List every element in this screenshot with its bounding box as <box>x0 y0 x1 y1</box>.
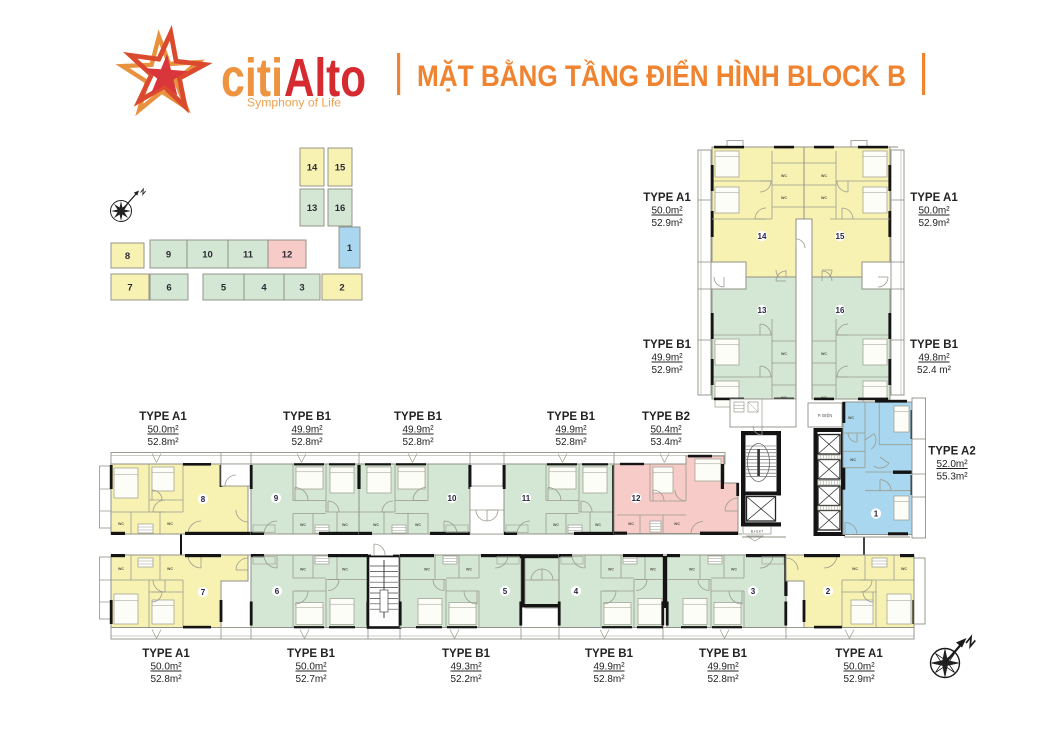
svg-text:WC: WC <box>342 568 348 572</box>
svg-text:53.4m²: 53.4m² <box>650 437 682 448</box>
svg-text:15: 15 <box>335 162 346 173</box>
svg-text:52.2m²: 52.2m² <box>450 674 482 685</box>
svg-text:WC: WC <box>901 567 907 571</box>
svg-text:TYPE B1: TYPE B1 <box>585 648 634 660</box>
svg-text:10: 10 <box>202 249 213 260</box>
svg-text:52.9m²: 52.9m² <box>651 218 683 229</box>
svg-text:9: 9 <box>274 494 279 503</box>
svg-text:16: 16 <box>335 203 346 214</box>
svg-text:12: 12 <box>632 494 641 503</box>
svg-text:TYPE A2: TYPE A2 <box>928 446 976 458</box>
svg-text:12: 12 <box>282 249 293 260</box>
svg-text:6: 6 <box>275 587 280 596</box>
svg-text:3: 3 <box>751 587 756 596</box>
svg-text:5: 5 <box>221 282 227 293</box>
svg-text:TYPE B1: TYPE B1 <box>283 411 332 423</box>
svg-text:P. ĐIỆN: P. ĐIỆN <box>818 413 833 418</box>
svg-text:TYPE B1: TYPE B1 <box>394 411 443 423</box>
svg-text:WC: WC <box>850 458 856 462</box>
svg-text:TYPE B1: TYPE B1 <box>910 339 959 351</box>
svg-text:11: 11 <box>522 494 531 503</box>
svg-text:WC: WC <box>848 416 854 420</box>
svg-text:TYPE A1: TYPE A1 <box>643 192 691 204</box>
svg-text:TYPE B1: TYPE B1 <box>699 648 748 660</box>
svg-text:50.0m²: 50.0m² <box>918 206 950 217</box>
svg-text:WC: WC <box>821 174 827 178</box>
svg-text:TYPE A1: TYPE A1 <box>142 648 190 660</box>
svg-text:52.8m²: 52.8m² <box>150 674 182 685</box>
svg-text:52.8m²: 52.8m² <box>147 437 179 448</box>
svg-text:WC: WC <box>628 522 634 526</box>
svg-text:WC: WC <box>553 523 559 527</box>
svg-text:WC: WC <box>595 523 601 527</box>
svg-text:49.9m²: 49.9m² <box>291 425 323 436</box>
svg-text:8: 8 <box>201 495 206 504</box>
svg-text:TYPE B1: TYPE B1 <box>287 648 336 660</box>
svg-text:50.0m²: 50.0m² <box>843 662 875 673</box>
svg-text:49.9m²: 49.9m² <box>593 662 625 673</box>
svg-text:2: 2 <box>826 587 831 596</box>
svg-text:16: 16 <box>836 306 845 315</box>
svg-text:WC: WC <box>415 523 421 527</box>
svg-text:WC: WC <box>781 196 787 200</box>
svg-text:13: 13 <box>307 203 318 214</box>
svg-text:TYPE B1: TYPE B1 <box>442 648 491 660</box>
svg-text:50.0m²: 50.0m² <box>147 425 179 436</box>
svg-text:TYPE A1: TYPE A1 <box>139 411 187 423</box>
svg-text:49.3m²: 49.3m² <box>450 662 482 673</box>
svg-text:49.9m²: 49.9m² <box>402 425 434 436</box>
svg-text:WC: WC <box>118 567 124 571</box>
svg-text:52.8m²: 52.8m² <box>555 437 587 448</box>
svg-text:TYPE A1: TYPE A1 <box>835 648 883 660</box>
svg-text:WC: WC <box>781 352 787 356</box>
svg-text:7: 7 <box>201 588 206 597</box>
svg-text:Symphony of Life: Symphony of Life <box>247 96 341 110</box>
svg-text:WC: WC <box>731 568 737 572</box>
svg-text:TYPE B2: TYPE B2 <box>642 411 690 423</box>
svg-text:52.4 m²: 52.4 m² <box>917 365 952 376</box>
svg-text:WC: WC <box>373 523 379 527</box>
svg-text:49.9m²: 49.9m² <box>651 353 683 364</box>
svg-text:3: 3 <box>299 282 304 293</box>
svg-text:WC: WC <box>821 196 827 200</box>
svg-text:11: 11 <box>243 249 254 260</box>
svg-text:WC: WC <box>674 522 680 526</box>
svg-text:55.3m²: 55.3m² <box>936 472 968 483</box>
svg-text:52.8m²: 52.8m² <box>291 437 323 448</box>
svg-text:WC: WC <box>118 522 124 526</box>
svg-text:B.HLKT: B.HLKT <box>751 529 764 533</box>
svg-text:52.8m²: 52.8m² <box>402 437 434 448</box>
svg-text:10: 10 <box>448 494 457 503</box>
svg-text:52.7m²: 52.7m² <box>295 674 327 685</box>
svg-text:52.9m²: 52.9m² <box>651 365 683 376</box>
svg-text:1: 1 <box>347 243 353 254</box>
svg-text:WC: WC <box>852 567 858 571</box>
svg-text:WC: WC <box>466 568 472 572</box>
svg-text:14: 14 <box>758 232 767 241</box>
svg-text:WC: WC <box>300 568 306 572</box>
svg-text:50.0m²: 50.0m² <box>150 662 182 673</box>
svg-text:13: 13 <box>758 306 767 315</box>
svg-text:49.8m²: 49.8m² <box>918 353 950 364</box>
svg-text:4: 4 <box>261 282 267 293</box>
svg-text:2: 2 <box>339 282 344 293</box>
svg-text:WC: WC <box>167 522 173 526</box>
svg-text:TYPE B1: TYPE B1 <box>643 339 692 351</box>
svg-text:6: 6 <box>166 282 171 293</box>
svg-text:9: 9 <box>166 249 171 260</box>
svg-text:WC: WC <box>300 523 306 527</box>
svg-text:MẶT BẰNG TẦNG ĐIỂN HÌNH BLOCK: MẶT BẰNG TẦNG ĐIỂN HÌNH BLOCK B <box>417 59 906 93</box>
svg-text:WC: WC <box>689 568 695 572</box>
svg-text:WC: WC <box>342 523 348 527</box>
svg-text:5: 5 <box>503 587 508 596</box>
svg-text:52.9m²: 52.9m² <box>843 674 875 685</box>
svg-text:15: 15 <box>836 232 845 241</box>
svg-text:WC: WC <box>781 174 787 178</box>
svg-text:TYPE A1: TYPE A1 <box>910 192 958 204</box>
svg-text:7: 7 <box>127 282 132 293</box>
svg-text:52.8m²: 52.8m² <box>593 674 625 685</box>
svg-text:14: 14 <box>307 162 318 173</box>
svg-text:52.8m²: 52.8m² <box>707 674 739 685</box>
svg-text:50.4m²: 50.4m² <box>650 425 682 436</box>
svg-text:49.9m²: 49.9m² <box>707 662 739 673</box>
svg-text:1: 1 <box>874 510 879 519</box>
svg-text:50.0m²: 50.0m² <box>295 662 327 673</box>
svg-text:WC: WC <box>167 567 173 571</box>
svg-text:8: 8 <box>125 251 130 262</box>
svg-text:50.0m²: 50.0m² <box>651 206 683 217</box>
svg-text:WC: WC <box>821 352 827 356</box>
svg-text:4: 4 <box>574 587 579 596</box>
svg-text:52.9m²: 52.9m² <box>918 218 950 229</box>
svg-text:49.9m²: 49.9m² <box>555 425 587 436</box>
svg-text:WC: WC <box>424 568 430 572</box>
svg-text:52.0m²: 52.0m² <box>936 459 968 470</box>
svg-text:TYPE B1: TYPE B1 <box>547 411 596 423</box>
svg-text:WC: WC <box>608 568 614 572</box>
svg-text:WC: WC <box>650 568 656 572</box>
